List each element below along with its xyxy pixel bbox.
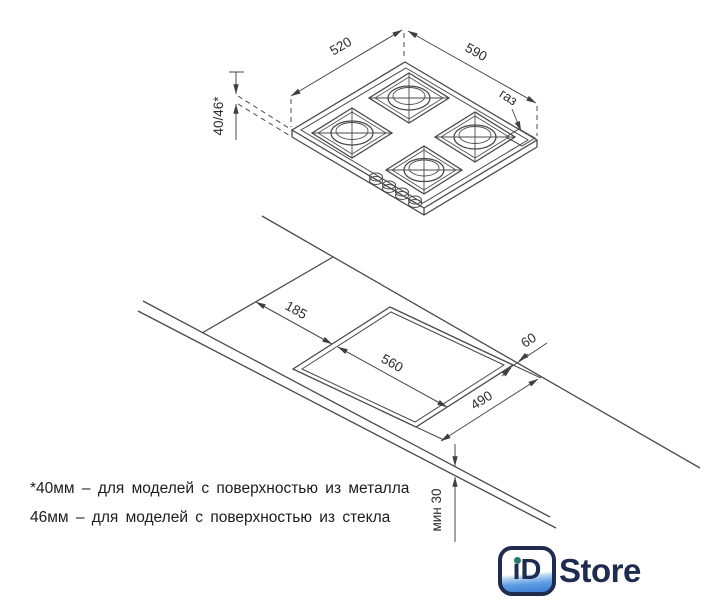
dim-520-label: 520	[327, 34, 354, 58]
footnote-line-2: 46мм – для моделей с поверхностью из сте…	[30, 503, 409, 532]
idstore-logo: iD Store	[498, 545, 641, 597]
idstore-wordmark: Store	[559, 552, 641, 590]
footnote-line-1: *40мм – для моделей с поверхностью из ме…	[30, 474, 409, 503]
installation-diagram: 520 590 40/46* газ	[0, 0, 725, 603]
dim-60-label: 60	[518, 330, 539, 351]
idstore-badge-text: iD	[502, 550, 552, 590]
hob-surface-outer	[292, 62, 537, 208]
gas-label: газ	[497, 86, 520, 108]
footnote: *40мм – для моделей с поверхностью из ме…	[30, 474, 409, 532]
dim-min-30-label: мин 30	[429, 488, 444, 531]
dim-height-label: 40/46*	[211, 96, 226, 136]
dim-590-label: 590	[463, 40, 490, 64]
idstore-badge: iD	[498, 546, 556, 596]
hob-top-view: 520 590 40/46* газ	[211, 30, 537, 215]
i-dot-icon	[514, 557, 521, 564]
dim-height	[229, 72, 292, 140]
hob-front-faces	[292, 137, 537, 215]
burner-left	[312, 108, 392, 158]
counter-left-edge	[202, 257, 333, 333]
